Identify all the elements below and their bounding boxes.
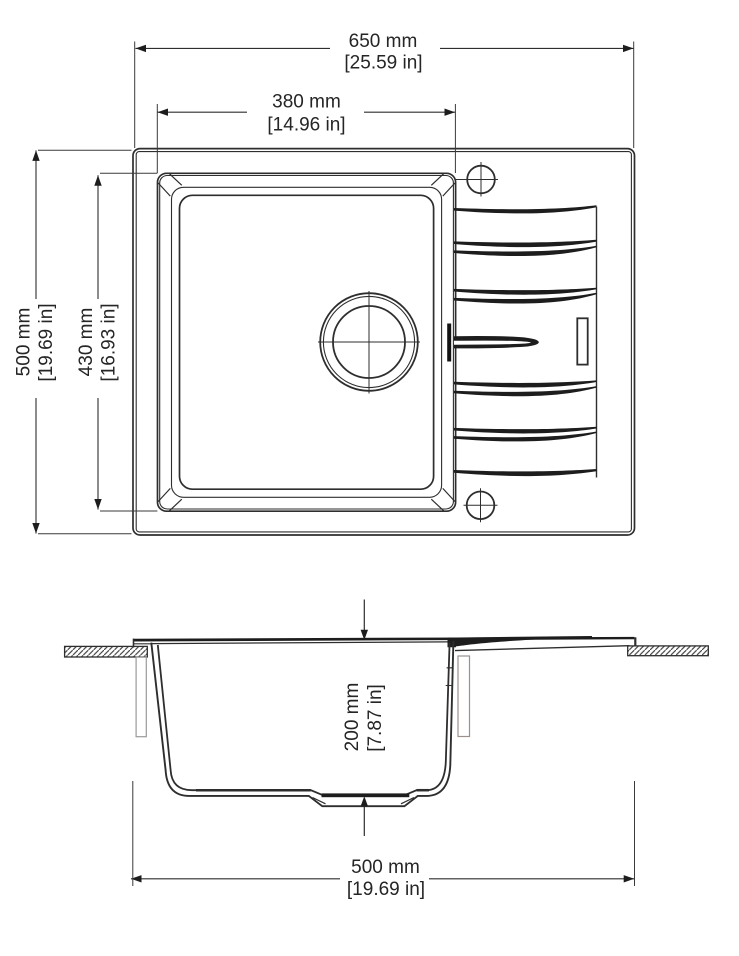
svg-text:[16.93 in]: [16.93 in]	[99, 303, 120, 381]
svg-text:380 mm: 380 mm	[272, 92, 341, 113]
svg-text:200 mm: 200 mm	[342, 683, 363, 752]
svg-text:430 mm: 430 mm	[76, 308, 97, 377]
svg-text:500 mm: 500 mm	[351, 857, 420, 878]
svg-text:500 mm: 500 mm	[13, 308, 34, 377]
svg-text:[7.87 in]: [7.87 in]	[365, 684, 386, 752]
svg-text:650 mm: 650 mm	[349, 31, 418, 52]
svg-text:[25.59 in]: [25.59 in]	[344, 53, 422, 74]
svg-text:[14.96 in]: [14.96 in]	[267, 115, 345, 136]
svg-text:[19.69 in]: [19.69 in]	[36, 303, 57, 381]
svg-text:[19.69 in]: [19.69 in]	[347, 879, 425, 900]
